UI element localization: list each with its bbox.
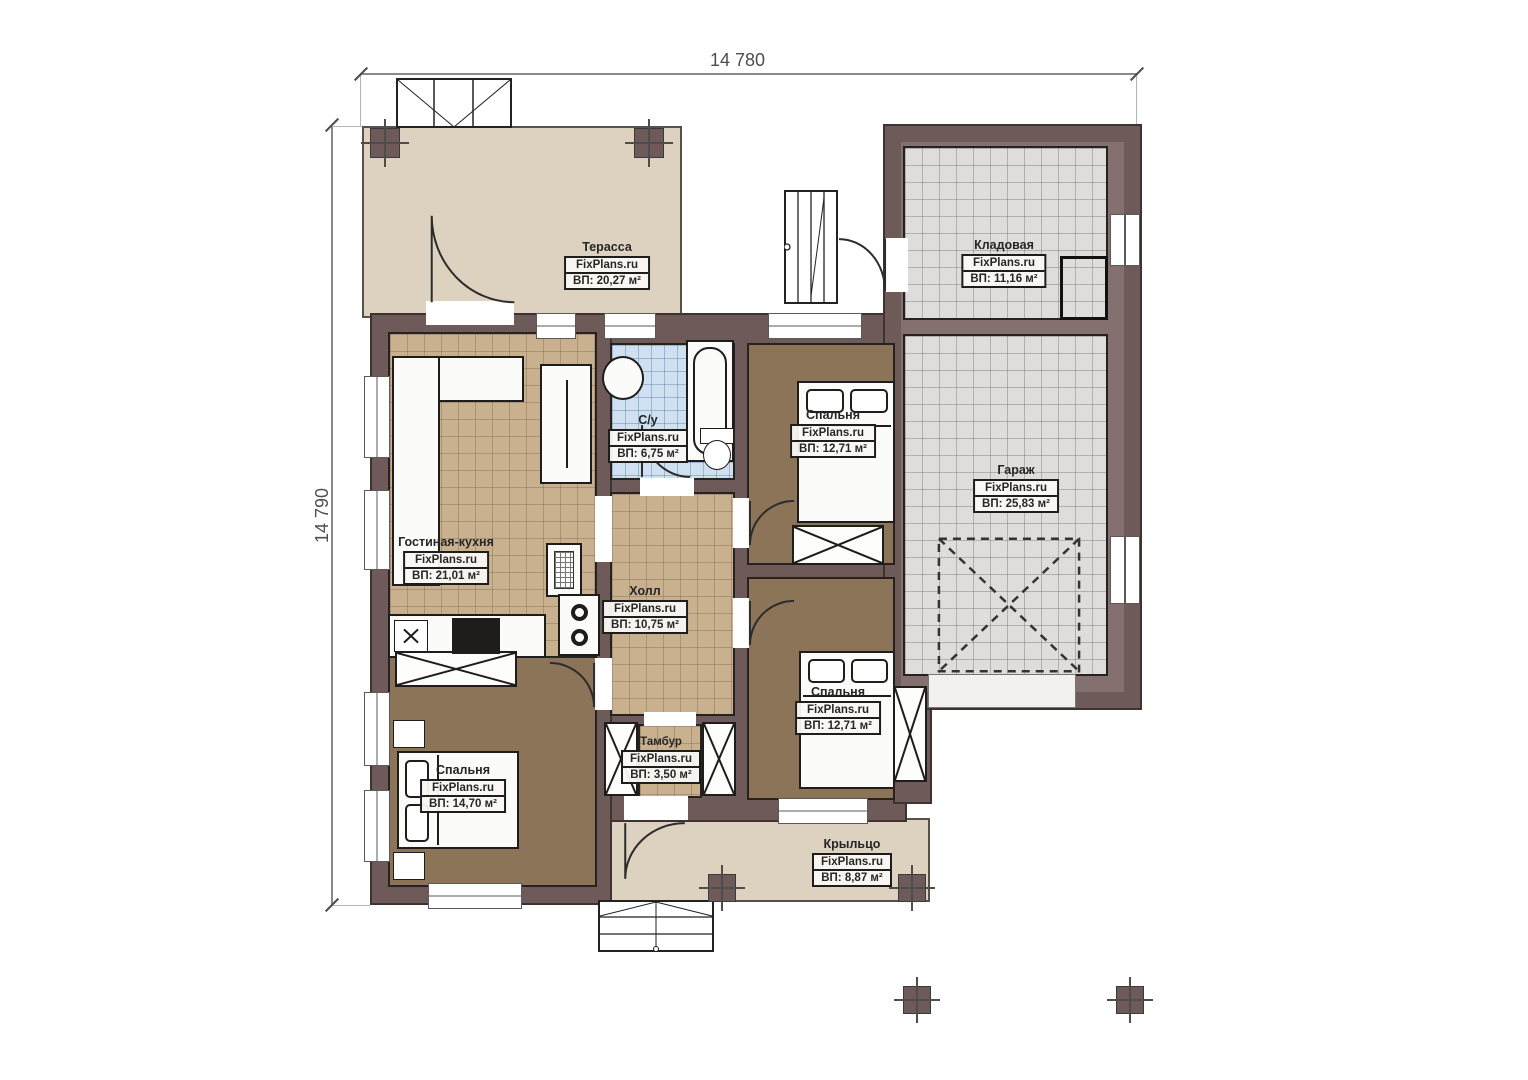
garage-parking-marker xyxy=(936,536,1082,674)
room-area: ВП: 10,75 м² xyxy=(604,616,686,632)
porch-post-right xyxy=(898,874,926,902)
room-area: ВП: 20,27 м² xyxy=(566,272,648,288)
boiler-burner xyxy=(571,604,588,621)
terrace-post-left xyxy=(370,128,400,158)
room-info-box: FixPlans.ru ВП: 20,27 м² xyxy=(564,256,650,290)
room-name: Спальня xyxy=(795,685,881,699)
bedroom-br-door-arc xyxy=(749,600,795,646)
porch-door-arc xyxy=(624,822,686,880)
window-bathroom-top xyxy=(604,313,656,339)
window-bedroom-br-bottom xyxy=(778,798,868,824)
boiler-unit xyxy=(558,594,600,656)
watermark: FixPlans.ru xyxy=(797,703,879,717)
room-name: Терасса xyxy=(564,240,650,254)
watermark: FixPlans.ru xyxy=(422,781,504,795)
opening-terrace-door xyxy=(426,301,514,325)
nightstand-top xyxy=(393,720,425,748)
room-name: Тамбур xyxy=(621,736,701,748)
room-name: Спальня xyxy=(420,763,506,777)
watermark: FixPlans.ru xyxy=(610,431,686,445)
dimension-extension xyxy=(332,126,362,127)
window-living-left-1 xyxy=(364,376,390,458)
storage-entrance-steps xyxy=(784,190,838,304)
boiler-burner xyxy=(571,629,588,646)
room-name: Спальня xyxy=(790,408,876,422)
room-area: ВП: 12,71 м² xyxy=(797,717,879,733)
window-bedroom-bl-bottom xyxy=(428,883,522,909)
window-storage-right xyxy=(1110,214,1140,266)
room-label-bedroom-top-right: Спальня FixPlans.ru ВП: 12,71 м² xyxy=(790,408,876,458)
room-area: ВП: 11,16 м² xyxy=(963,270,1044,286)
opening-hall-bathroom xyxy=(640,478,694,496)
bedroom-tr-door-arc xyxy=(749,500,795,546)
kitchen-stove xyxy=(452,618,500,654)
room-info-box: FixPlans.ru ВП: 8,87 м² xyxy=(812,853,892,887)
opening-hall-bedroom-br xyxy=(733,598,749,648)
storage-door-arc xyxy=(838,238,886,292)
dimension-extension xyxy=(332,905,370,906)
site-post-left xyxy=(903,986,931,1014)
opening-hall-bedroom-bl xyxy=(595,658,612,710)
room-label-storage: Кладовая FixPlans.ru ВП: 11,16 м² xyxy=(961,238,1046,288)
room-info-box: FixPlans.ru ВП: 12,71 м² xyxy=(795,701,881,735)
watermark: FixPlans.ru xyxy=(566,258,648,272)
room-label-bedroom-bottom-left: Спальня FixPlans.ru ВП: 14,70 м² xyxy=(420,763,506,813)
terrace-door-arc xyxy=(430,214,516,304)
room-area: ВП: 14,70 м² xyxy=(422,795,504,811)
watermark: FixPlans.ru xyxy=(792,426,874,440)
bathroom-sink xyxy=(602,356,644,400)
opening-living-hall xyxy=(595,496,612,562)
room-area: ВП: 21,01 м² xyxy=(405,567,487,583)
floor-plan-canvas: 14 780 14 790 xyxy=(0,0,1528,1080)
watermark: FixPlans.ru xyxy=(975,481,1057,495)
room-info-box: FixPlans.ru ВП: 10,75 м² xyxy=(602,600,688,634)
window-bedroom-bl-left-1 xyxy=(364,692,390,766)
dimension-line-top xyxy=(360,73,1138,75)
porch-steps xyxy=(598,900,714,952)
watermark: FixPlans.ru xyxy=(405,553,487,567)
watermark: FixPlans.ru xyxy=(963,256,1044,270)
room-label-porch: Крыльцо FixPlans.ru ВП: 8,87 м² xyxy=(812,837,892,887)
opening-storage-door xyxy=(886,238,908,292)
room-label-garage: Гараж FixPlans.ru ВП: 25,83 м² xyxy=(973,463,1059,513)
window-living-left-2 xyxy=(364,490,390,570)
room-label-terrace: Терасса FixPlans.ru ВП: 20,27 м² xyxy=(564,240,650,290)
room-label-bathroom: С/у FixPlans.ru ВП: 6,75 м² xyxy=(608,413,688,463)
window-garage-right xyxy=(1110,536,1140,604)
closet-vestibule-right xyxy=(702,722,736,796)
room-name: Гостиная-кухня xyxy=(398,535,494,549)
room-info-box: FixPlans.ru ВП: 3,50 м² xyxy=(621,750,701,784)
bedroom-bl-door-arc xyxy=(549,662,595,708)
site-post-right xyxy=(1116,986,1144,1014)
wardrobe-bottom-left xyxy=(395,651,517,687)
dimension-extension xyxy=(1136,74,1137,126)
room-label-hall: Холл FixPlans.ru ВП: 10,75 м² xyxy=(602,584,688,634)
dimension-height-label: 14 790 xyxy=(312,488,333,543)
opening-hall-vestibule xyxy=(644,712,696,726)
room-label-vestibule: Тамбур FixPlans.ru ВП: 3,50 м² xyxy=(621,736,701,784)
dimension-extension xyxy=(360,74,361,126)
room-name: Крыльцо xyxy=(812,837,892,851)
wardrobe-top-right xyxy=(792,525,884,565)
room-label-bedroom-bottom-right: Спальня FixPlans.ru ВП: 12,71 м² xyxy=(795,685,881,735)
room-info-box: FixPlans.ru ВП: 21,01 м² xyxy=(403,551,489,585)
tv-unit xyxy=(540,364,592,484)
garage-door-opening xyxy=(928,674,1076,708)
room-info-box: FixPlans.ru ВП: 25,83 м² xyxy=(973,479,1059,513)
room-name: Гараж xyxy=(973,463,1059,477)
kitchen-fridge xyxy=(546,543,582,597)
room-name: Кладовая xyxy=(961,238,1046,252)
dimension-width-label: 14 780 xyxy=(710,50,765,71)
terrace-post-right xyxy=(634,128,664,158)
window-bedroom-bl-left-2 xyxy=(364,790,390,862)
room-info-box: FixPlans.ru ВП: 6,75 м² xyxy=(608,429,688,463)
room-area: ВП: 12,71 м² xyxy=(792,440,874,456)
window-bedroom-tr-top xyxy=(768,313,862,339)
room-area: ВП: 25,83 м² xyxy=(975,495,1057,511)
room-info-box: FixPlans.ru ВП: 14,70 м² xyxy=(420,779,506,813)
opening-hall-bedroom-tr xyxy=(733,498,749,548)
nightstand-bottom xyxy=(393,852,425,880)
watermark: FixPlans.ru xyxy=(604,602,686,616)
room-area: ВП: 3,50 м² xyxy=(623,766,699,782)
room-area: ВП: 8,87 м² xyxy=(814,869,890,885)
room-area: ВП: 6,75 м² xyxy=(610,445,686,461)
room-name: С/у xyxy=(608,413,688,427)
porch-post-left xyxy=(708,874,736,902)
toilet-bowl xyxy=(703,440,731,470)
room-info-box: FixPlans.ru ВП: 12,71 м² xyxy=(790,424,876,458)
window-living-top xyxy=(536,313,576,339)
wardrobe-bottom-right xyxy=(893,686,927,782)
watermark: FixPlans.ru xyxy=(814,855,890,869)
room-name: Холл xyxy=(602,584,688,598)
opening-vestibule-porch xyxy=(624,796,688,820)
kitchen-sink xyxy=(394,620,428,652)
terrace-steps xyxy=(396,78,512,128)
room-label-living-kitchen: Гостиная-кухня FixPlans.ru ВП: 21,01 м² xyxy=(398,535,494,585)
storage-equipment-box xyxy=(1060,256,1108,320)
room-info-box: FixPlans.ru ВП: 11,16 м² xyxy=(961,254,1046,288)
watermark: FixPlans.ru xyxy=(623,752,699,766)
